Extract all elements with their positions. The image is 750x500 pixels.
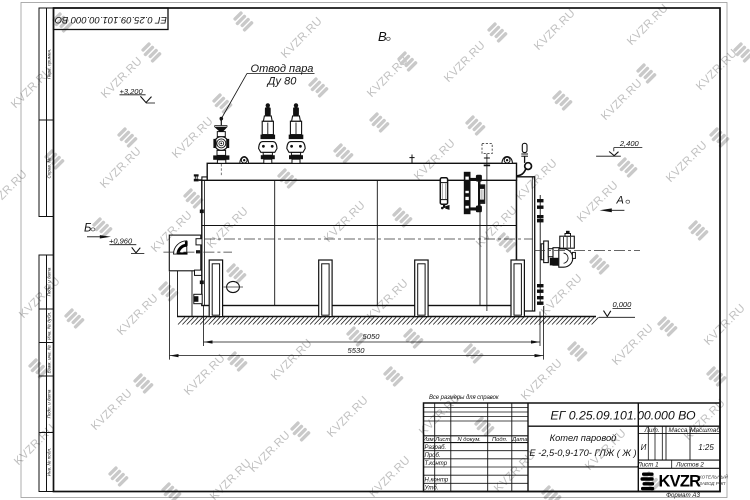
- svg-text:+0,960: +0,960: [109, 236, 133, 245]
- svg-text:Е -2,5-0,9-170- ГЛЖ ( Ж ): Е -2,5-0,9-170- ГЛЖ ( Ж ): [529, 448, 636, 458]
- svg-text:В: В: [378, 29, 387, 44]
- svg-text:ЕГ 0.25.09.101.00.000 ВО: ЕГ 0.25.09.101.00.000 ВО: [550, 409, 696, 423]
- svg-text:И: И: [641, 443, 647, 452]
- svg-text:Н.контр: Н.контр: [425, 478, 449, 484]
- svg-text:N докум.: N докум.: [457, 437, 480, 443]
- svg-text:1:25: 1:25: [698, 443, 714, 452]
- svg-text:Разраб.: Разраб.: [425, 445, 447, 451]
- svg-text:2,400: 2,400: [619, 139, 640, 148]
- svg-text:Ду 80: Ду 80: [266, 76, 298, 88]
- svg-text:Б: Б: [84, 223, 92, 235]
- svg-text:Формат А3: Формат А3: [666, 492, 700, 499]
- svg-text:Листов 2: Листов 2: [675, 462, 704, 469]
- svg-text:Дата: Дата: [511, 437, 528, 443]
- svg-text:KVZR: KVZR: [659, 473, 702, 491]
- svg-text:Лист 1: Лист 1: [636, 462, 658, 469]
- svg-text:Инв. № дубл.: Инв. № дубл.: [47, 312, 52, 340]
- svg-text:Все размеры для справок: Все размеры для справок: [429, 395, 500, 401]
- svg-text:Подп. и дата: Подп. и дата: [47, 389, 52, 418]
- svg-text:КОТЕЛЬНЫЙ: КОТЕЛЬНЫЙ: [699, 473, 729, 480]
- svg-text:5530: 5530: [348, 346, 366, 355]
- svg-text:ЗАВОД РЭП: ЗАВОД РЭП: [699, 481, 726, 486]
- svg-text:Подп.: Подп.: [492, 437, 507, 443]
- svg-text:Проб.: Проб.: [425, 453, 441, 459]
- svg-text:Утб.: Утб.: [424, 486, 439, 492]
- svg-text:Инв. № подл.: Инв. № подл.: [47, 448, 52, 477]
- svg-text:Лит.: Лит.: [644, 427, 660, 434]
- svg-text:Лист: Лист: [434, 437, 450, 443]
- svg-text:0,000: 0,000: [613, 300, 633, 309]
- svg-text:Т.контр: Т.контр: [425, 461, 448, 467]
- svg-text:А: А: [616, 195, 624, 207]
